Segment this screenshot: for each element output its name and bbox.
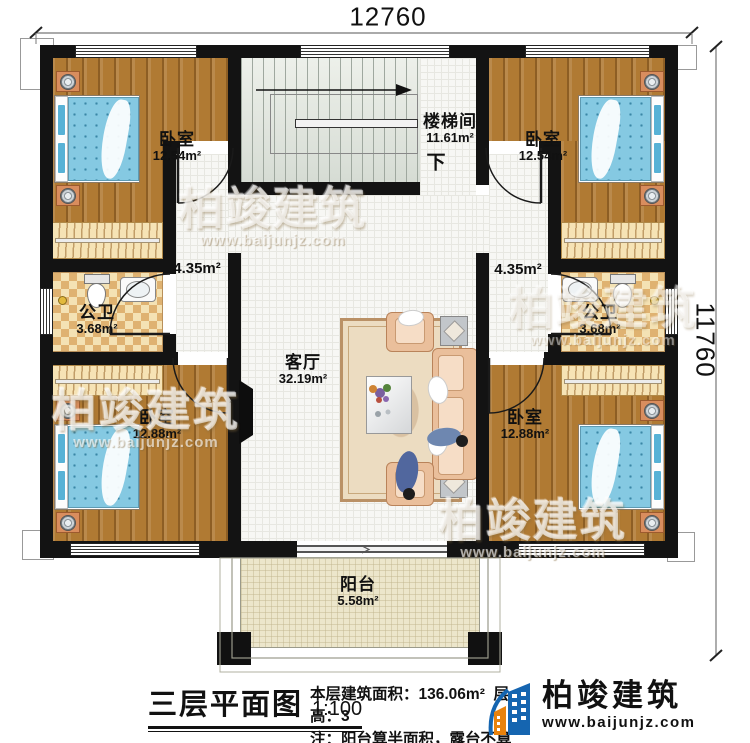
room-label-corridor-left: 4.35m² (173, 261, 221, 277)
company-name: 柏竣建筑 (542, 680, 695, 713)
room-label-bedroom-tr: 卧室 12.54m² (519, 131, 567, 163)
plan-title: 三层平面图 (148, 681, 303, 723)
wall (476, 45, 489, 185)
sliding-door (297, 545, 447, 553)
bed (578, 95, 664, 183)
pillow (653, 433, 662, 464)
pillow (57, 470, 66, 501)
nightstand (56, 400, 80, 421)
bed (54, 424, 140, 510)
floor-plan-drawing: 卧室 12.54m² 卧室 12.54m² 楼梯间 11.61m² 下 4.35… (0, 0, 750, 743)
room-label-stairwell: 楼梯间 11.61m² (423, 113, 477, 145)
column (468, 632, 502, 665)
nightstand (640, 400, 664, 421)
pillow (653, 470, 662, 501)
wall (40, 259, 176, 272)
company-website: www.baijunjz.com (542, 714, 695, 731)
wall (476, 253, 489, 558)
sink-icon (120, 277, 156, 302)
window (75, 45, 197, 58)
wall (548, 259, 678, 272)
window (40, 288, 53, 335)
room-label-living-room: 客厅 32.19m² (279, 354, 327, 386)
pillow (653, 142, 662, 174)
nightstand (640, 71, 664, 92)
stair-center-rail (295, 119, 418, 128)
company-logo: 柏竣建筑 www.baijunjz.com (488, 680, 695, 738)
coffee-table (366, 376, 412, 434)
column (217, 632, 251, 665)
nightstand (640, 512, 664, 533)
pillow (57, 142, 66, 174)
sink-icon (562, 277, 598, 302)
closet (561, 365, 665, 396)
corridor-left-opening (228, 195, 241, 253)
nightstand (56, 512, 80, 533)
floor-drain-icon (58, 296, 67, 305)
nightstand (56, 71, 80, 92)
window (665, 288, 678, 335)
closet (52, 365, 163, 396)
sofa (432, 348, 478, 480)
corridor-right-floor (489, 154, 548, 352)
wall (544, 352, 678, 365)
company-logo-icon (488, 680, 536, 738)
floor-drain-icon (650, 296, 659, 305)
corridor-right-opening (476, 195, 489, 253)
room-label-bathroom-left: 公卫 3.68m² (76, 304, 117, 336)
room-label-bedroom-tl: 卧室 12.54m² (153, 131, 201, 163)
wall (40, 352, 178, 365)
closet (561, 222, 665, 259)
room-label-corridor-right: 4.35m² (494, 262, 542, 278)
pillow (57, 433, 66, 464)
window (525, 45, 650, 58)
window (518, 543, 645, 556)
nightstand (640, 185, 664, 206)
window (300, 45, 450, 58)
closet (52, 222, 163, 259)
dimension-width: 12760 (349, 2, 426, 33)
armchair (386, 462, 434, 506)
pillow (57, 104, 66, 136)
room-label-balcony: 阳台 5.58m² (337, 576, 378, 608)
tv-icon (239, 380, 253, 444)
wall (476, 141, 488, 154)
window (70, 543, 200, 556)
wall (228, 182, 420, 195)
room-label-bathroom-right: 公卫 3.68m² (579, 304, 620, 336)
side-table (440, 316, 468, 346)
room-label-bedroom-bl: 卧室 12.88m² (133, 409, 181, 441)
bed (578, 424, 664, 510)
room-label-bedroom-br: 卧室 12.88m² (501, 409, 549, 441)
wall (231, 141, 241, 154)
wall (228, 45, 241, 185)
pillow (653, 104, 662, 136)
stair-direction-label: 下 (426, 148, 445, 175)
nightstand (56, 185, 80, 206)
bed (54, 95, 140, 183)
dimension-height: 11760 (690, 302, 721, 377)
corridor-left-floor (176, 154, 228, 352)
